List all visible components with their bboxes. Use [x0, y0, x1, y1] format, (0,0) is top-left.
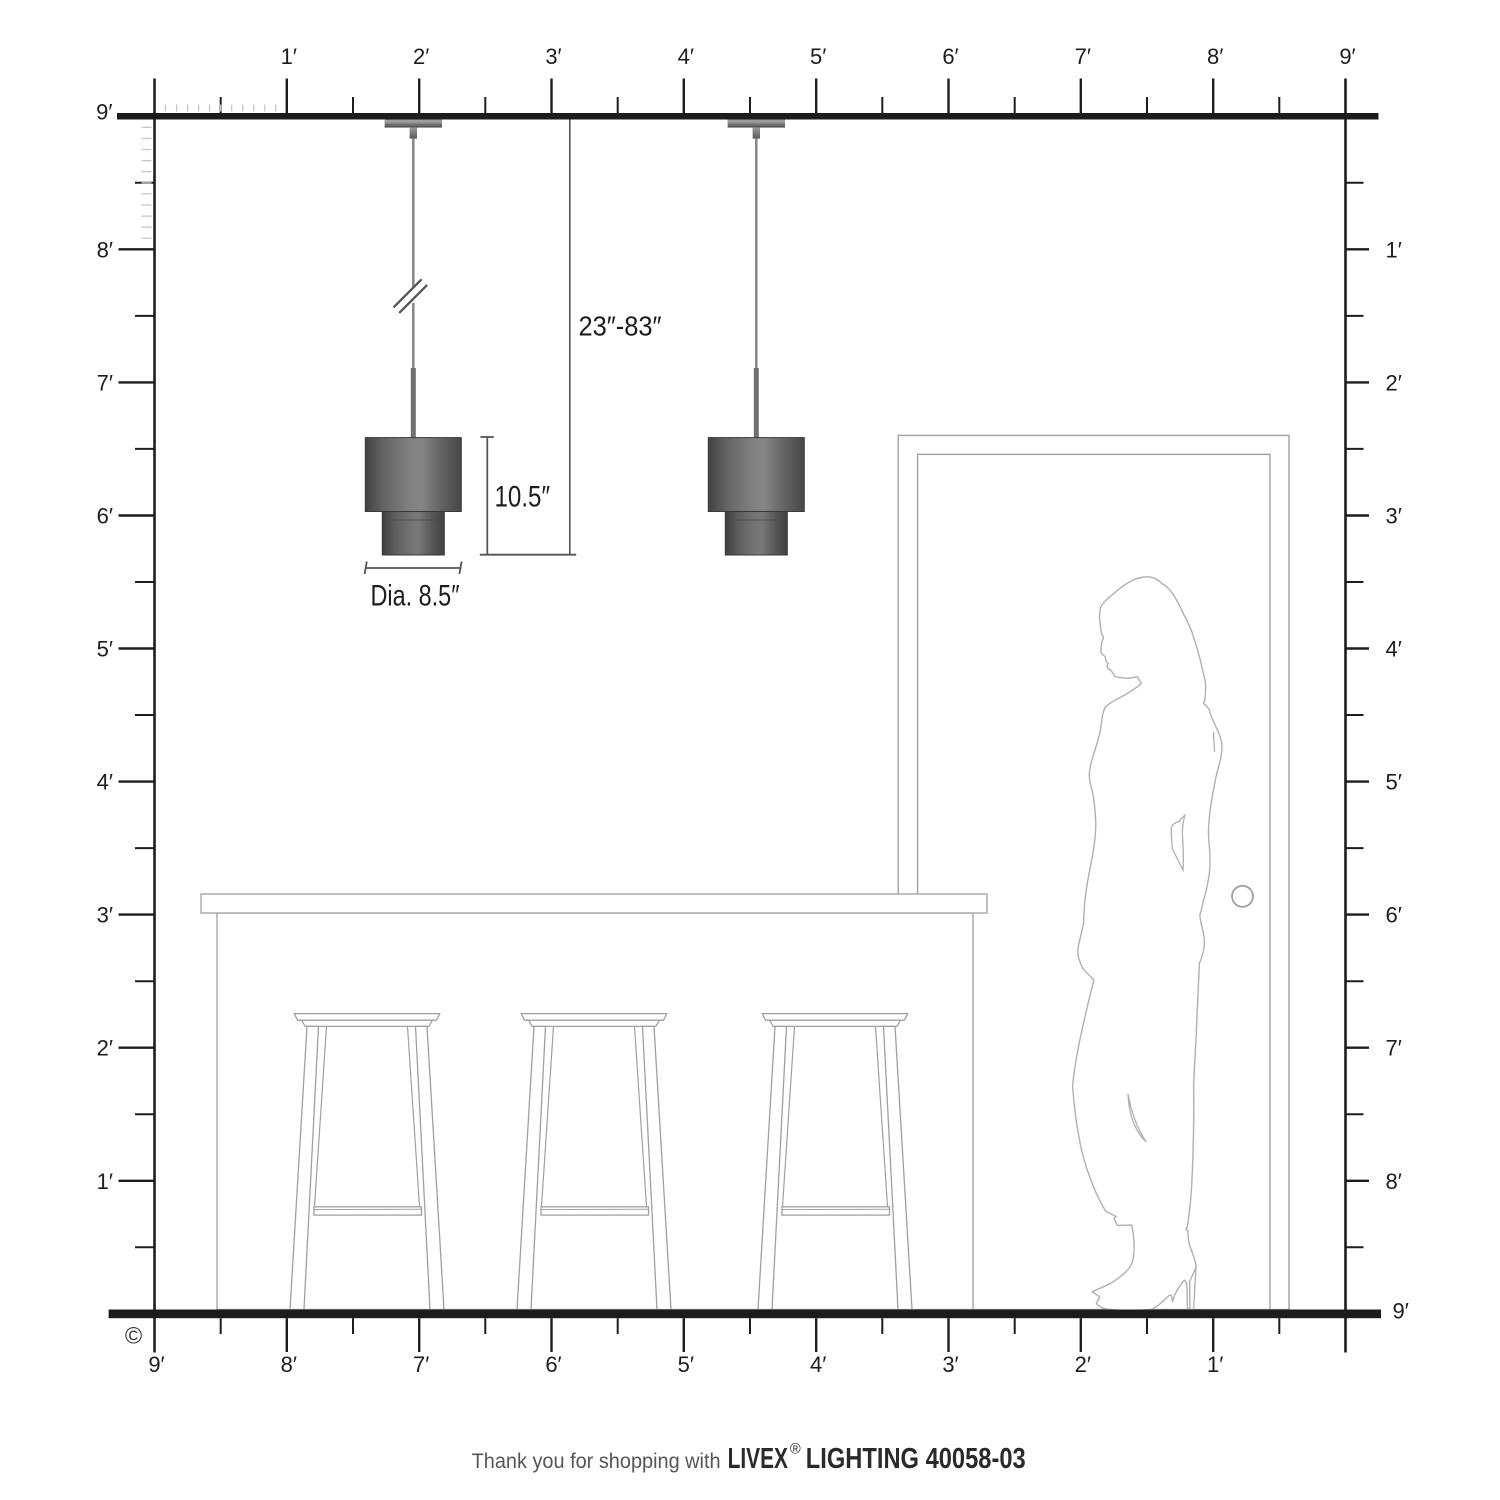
svg-text:9′: 9′ — [148, 1352, 164, 1377]
svg-text:LIGHTING 40058-03: LIGHTING 40058-03 — [806, 1443, 1026, 1475]
svg-text:®: ® — [790, 1442, 801, 1458]
svg-text:7′: 7′ — [1075, 44, 1091, 69]
svg-text:3′: 3′ — [1386, 504, 1402, 529]
svg-text:LIVEX: LIVEX — [728, 1443, 789, 1475]
svg-text:5′: 5′ — [810, 44, 826, 69]
svg-text:1′: 1′ — [281, 44, 297, 69]
svg-text:23″-83″: 23″-83″ — [579, 311, 662, 342]
svg-text:9′: 9′ — [96, 100, 112, 125]
svg-text:6′: 6′ — [1386, 903, 1402, 928]
svg-text:8′: 8′ — [1207, 44, 1223, 69]
svg-text:2′: 2′ — [97, 1036, 113, 1061]
svg-text:9′: 9′ — [1339, 44, 1355, 69]
svg-text:4′: 4′ — [1386, 637, 1402, 662]
svg-text:7′: 7′ — [1386, 1036, 1402, 1061]
svg-text:7′: 7′ — [413, 1352, 429, 1377]
svg-text:2′: 2′ — [1386, 370, 1402, 395]
svg-text:4′: 4′ — [810, 1352, 826, 1377]
svg-text:1′: 1′ — [97, 1169, 113, 1194]
svg-text:2′: 2′ — [1075, 1352, 1091, 1377]
svg-text:8′: 8′ — [281, 1352, 297, 1377]
svg-text:10.5″: 10.5″ — [495, 481, 551, 514]
svg-text:3′: 3′ — [97, 903, 113, 928]
svg-text:5′: 5′ — [678, 1352, 694, 1377]
svg-text:4′: 4′ — [678, 44, 694, 69]
svg-text:7′: 7′ — [97, 370, 113, 395]
svg-text:3′: 3′ — [942, 1352, 958, 1377]
svg-text:5′: 5′ — [1386, 770, 1402, 795]
svg-text:Dia. 8.5″: Dia. 8.5″ — [371, 580, 460, 613]
svg-text:©: © — [125, 1323, 142, 1349]
svg-text:6′: 6′ — [545, 1352, 561, 1377]
svg-text:3′: 3′ — [545, 44, 561, 69]
svg-text:6′: 6′ — [97, 504, 113, 529]
svg-text:6′: 6′ — [942, 44, 958, 69]
svg-text:9′: 9′ — [1393, 1298, 1409, 1323]
svg-text:5′: 5′ — [97, 637, 113, 662]
svg-text:1′: 1′ — [1386, 237, 1402, 262]
svg-text:4′: 4′ — [97, 770, 113, 795]
svg-text:1′: 1′ — [1207, 1352, 1223, 1377]
svg-text:8′: 8′ — [1386, 1169, 1402, 1194]
svg-text:2′: 2′ — [413, 44, 429, 69]
svg-text:Thank you for shopping with: Thank you for shopping with — [472, 1449, 721, 1473]
svg-text:8′: 8′ — [97, 237, 113, 262]
